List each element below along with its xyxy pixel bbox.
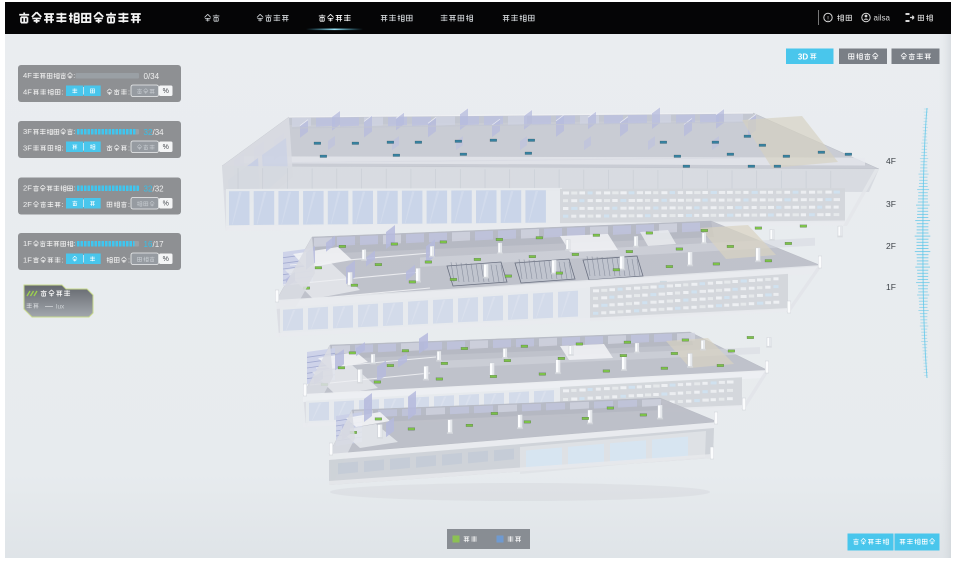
- svg-text::: :: [62, 89, 64, 96]
- svg-text:—: —: [45, 302, 53, 311]
- svg-text::: :: [128, 257, 130, 264]
- svg-text:4F: 4F: [886, 156, 896, 166]
- svg-text:4F: 4F: [23, 87, 32, 96]
- svg-text:2F: 2F: [886, 241, 896, 251]
- svg-text:ailsa: ailsa: [874, 13, 891, 22]
- svg-text:3F: 3F: [23, 127, 32, 136]
- svg-text::: :: [62, 257, 64, 264]
- svg-text::: :: [73, 241, 75, 248]
- svg-text:%: %: [163, 144, 169, 151]
- svg-text:%: %: [163, 201, 169, 208]
- svg-text:1F: 1F: [23, 255, 32, 264]
- svg-text:/32: /32: [153, 185, 165, 194]
- svg-text:%: %: [163, 88, 169, 95]
- svg-text::: :: [73, 73, 75, 80]
- svg-text:!: !: [827, 15, 829, 22]
- svg-text:%: %: [163, 256, 169, 263]
- svg-text:1F: 1F: [23, 239, 32, 248]
- svg-text:0/34: 0/34: [144, 72, 160, 81]
- svg-text:2F: 2F: [23, 200, 32, 209]
- svg-text::: :: [128, 145, 130, 152]
- svg-text:3F: 3F: [886, 199, 896, 209]
- svg-text::: :: [62, 202, 64, 209]
- svg-text:3F: 3F: [23, 143, 32, 152]
- svg-text::: :: [73, 129, 75, 136]
- svg-text:/17: /17: [153, 240, 165, 249]
- svg-text:lux: lux: [56, 304, 65, 311]
- svg-text::: :: [73, 186, 75, 193]
- svg-text::: :: [62, 145, 64, 152]
- svg-text::: :: [128, 202, 130, 209]
- svg-text:2F: 2F: [23, 184, 32, 193]
- svg-text::: :: [128, 89, 130, 96]
- svg-text:/34: /34: [153, 128, 165, 137]
- svg-text:1F: 1F: [886, 282, 896, 292]
- svg-text:3D: 3D: [798, 52, 808, 61]
- svg-text:4F: 4F: [23, 71, 32, 80]
